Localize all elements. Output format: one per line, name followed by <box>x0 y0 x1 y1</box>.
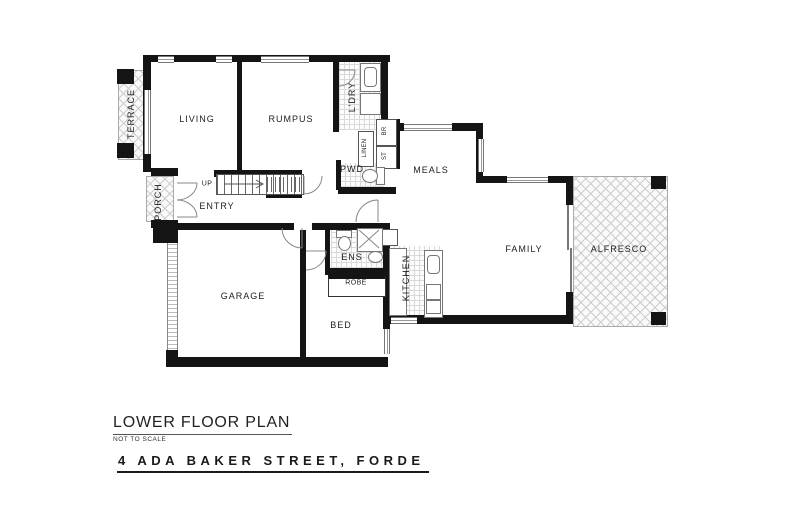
wall-segment <box>333 57 339 132</box>
room-label-store: ST <box>382 152 388 160</box>
window <box>384 329 390 354</box>
wall-segment <box>166 357 388 367</box>
room-label-porch: PORCH <box>153 183 163 221</box>
wall-segment <box>117 69 134 84</box>
sliding-door <box>567 205 569 250</box>
door-arc <box>356 200 378 222</box>
scale-note: NOT TO SCALE <box>113 436 429 443</box>
window <box>158 56 174 63</box>
wall-segment <box>153 228 178 243</box>
wall-segment <box>117 143 134 158</box>
room-label-living: LIVING <box>179 114 215 124</box>
window <box>144 90 151 154</box>
wall-segment <box>452 123 483 131</box>
title-block: LOWER FLOOR PLAN NOT TO SCALE 4 ADA BAKE… <box>113 414 429 473</box>
wall-segment <box>325 223 330 274</box>
stairs <box>267 177 301 192</box>
door-arc <box>177 183 197 200</box>
toilet-symbol <box>338 236 351 251</box>
room-label-meals: MEALS <box>413 165 449 175</box>
sink-symbol <box>427 255 440 274</box>
wall-segment <box>338 187 396 194</box>
room-label-family: FAMILY <box>505 244 542 254</box>
room-label-entry: ENTRY <box>199 201 234 211</box>
wall-segment <box>166 223 294 230</box>
room-label-kitchen: KITCHEN <box>401 255 411 302</box>
wall-segment <box>566 176 573 205</box>
sliding-door <box>570 248 572 292</box>
shower-symbol <box>357 228 383 252</box>
oven-symbol <box>426 300 441 314</box>
cooktop-symbol <box>426 284 441 300</box>
plan-title: LOWER FLOOR PLAN <box>113 414 292 435</box>
wall-segment <box>651 176 666 189</box>
window <box>507 177 548 183</box>
garage-door <box>167 243 178 353</box>
room-label-bed: BED <box>330 320 352 330</box>
window <box>216 56 232 63</box>
window <box>391 317 417 324</box>
room-label-garage: GARAGE <box>221 291 266 301</box>
laundry-trough-bowl-symbol <box>364 67 377 87</box>
room-label-ensuite: ENS <box>341 252 363 262</box>
room-label-laundry: L'DRY <box>347 82 357 113</box>
window <box>478 139 484 172</box>
room-label-rumpus: RUMPUS <box>268 114 313 124</box>
room-label-terrace: TERRACE <box>126 89 136 139</box>
wall-segment <box>325 268 390 275</box>
room-label-broom: BR <box>382 127 388 136</box>
wall-segment <box>651 312 666 325</box>
room-label-robe: ROBE <box>345 280 366 287</box>
room-label-powder: PWD <box>340 164 364 174</box>
room-label-linen: LINEN <box>362 139 368 158</box>
door-arc <box>282 228 302 248</box>
toilet-symbol <box>362 169 378 183</box>
wall-segment <box>476 176 507 183</box>
wall-segment <box>151 168 178 176</box>
room-label-alfresco: ALFRESCO <box>591 244 648 254</box>
door-arc <box>306 251 326 270</box>
stairs-up-label: UP <box>202 181 213 188</box>
floor-plan-page: TERRACE LIVING RUMPUS L'DRY BR LINEN ST … <box>0 0 790 527</box>
address-title: 4 ADA BAKER STREET, FORDE <box>117 453 429 473</box>
wall-segment <box>237 62 242 170</box>
door-arc <box>304 176 322 194</box>
window <box>404 124 452 131</box>
wall-segment <box>300 230 306 357</box>
pantry-cupboard <box>381 229 398 246</box>
washing-machine-symbol <box>360 93 381 115</box>
window <box>261 56 309 63</box>
wall-segment <box>312 223 326 230</box>
basin-symbol <box>368 251 383 263</box>
door-arc <box>177 200 197 217</box>
